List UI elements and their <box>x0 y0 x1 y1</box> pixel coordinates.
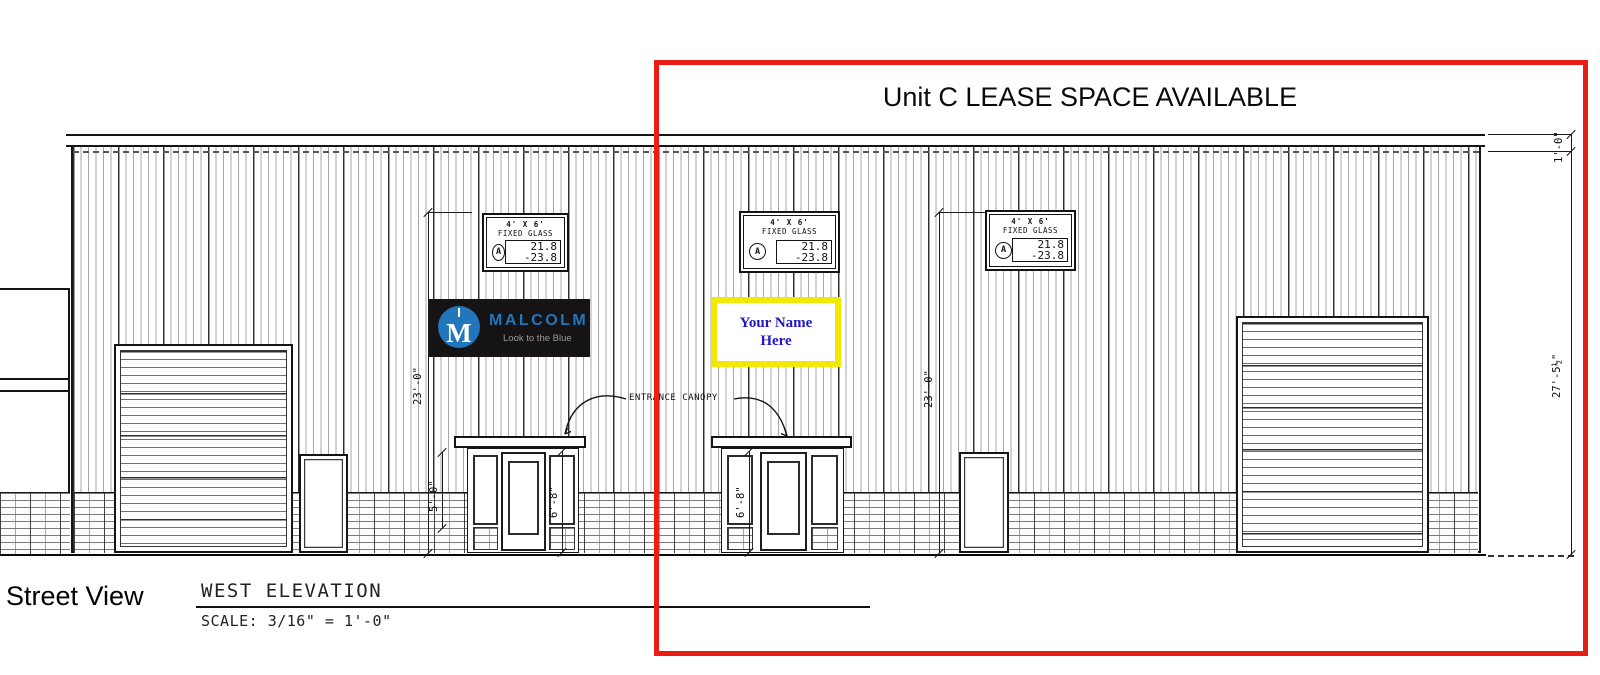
drawing-scale: SCALE: 3/16" = 1'-0" <box>201 612 392 630</box>
lease-banner-text: Unit C LEASE SPACE AVAILABLE <box>720 82 1460 113</box>
title-underline <box>196 606 870 608</box>
drawing-title: WEST ELEVATION <box>201 580 382 602</box>
street-view-label: Street View <box>6 581 144 612</box>
elevation-drawing: 4' X 6' FIXED GLASS A 21.8 -23.8 4' X 6'… <box>0 0 1600 675</box>
